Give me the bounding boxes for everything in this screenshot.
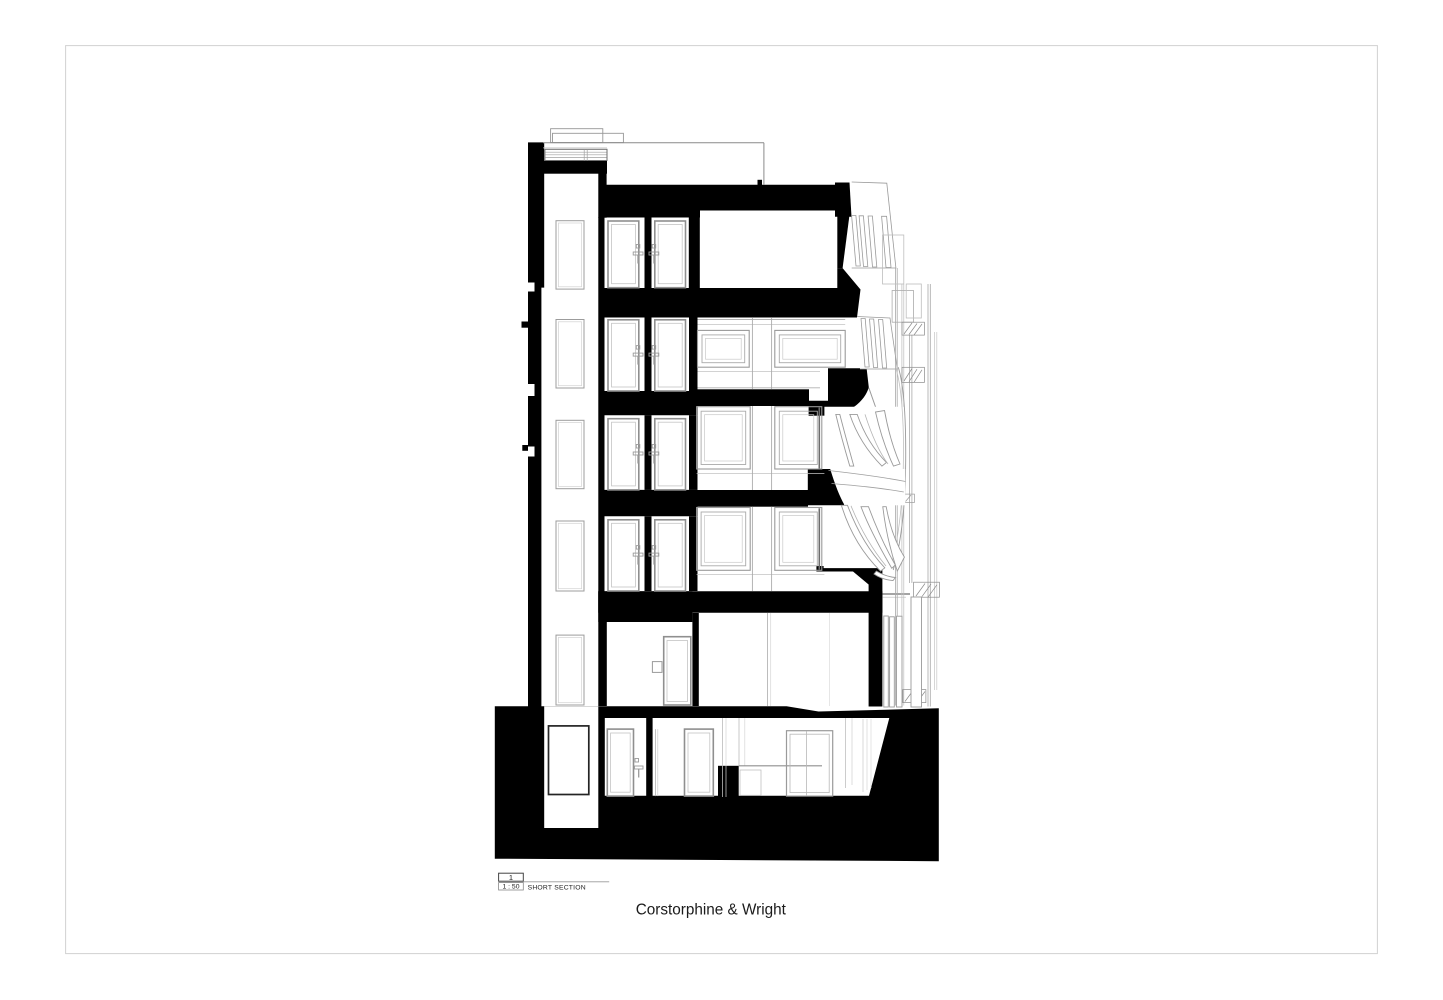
svg-text:SHORT SECTION: SHORT SECTION — [528, 885, 586, 892]
svg-text:Corstorphine & Wright: Corstorphine & Wright — [636, 901, 787, 918]
svg-text:1 : 50: 1 : 50 — [502, 884, 519, 891]
svg-text:1: 1 — [509, 873, 513, 882]
